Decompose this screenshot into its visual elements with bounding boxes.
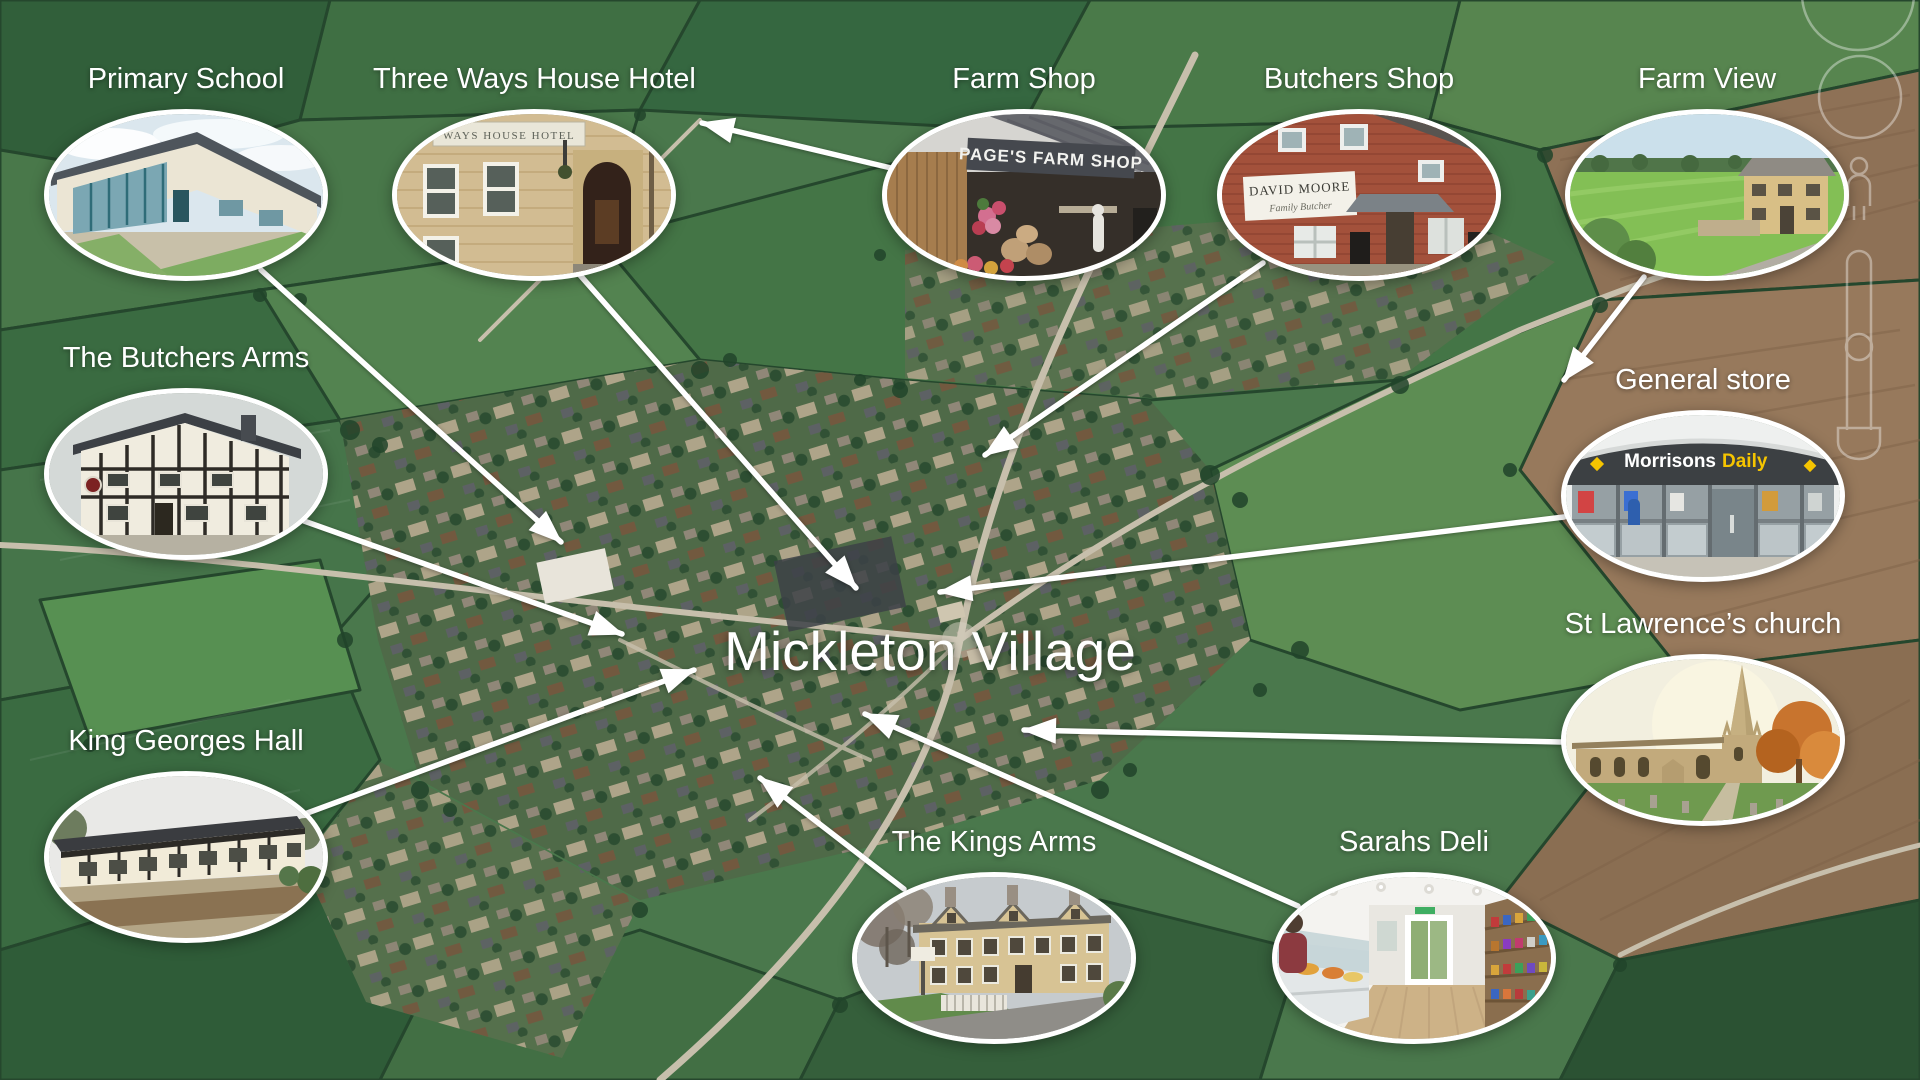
look-joystick-icon[interactable] (1819, 56, 1901, 138)
mickleton-village-overview: Primary School Three Ways House Hotel (0, 0, 1920, 1080)
pegman-icon[interactable] (1848, 158, 1870, 220)
zoom-slider-handle[interactable] (1846, 334, 1872, 360)
earth-navigation-controls (0, 0, 1920, 1080)
zoom-slider[interactable] (1838, 251, 1880, 459)
compass-ring-icon[interactable] (1802, 0, 1914, 50)
